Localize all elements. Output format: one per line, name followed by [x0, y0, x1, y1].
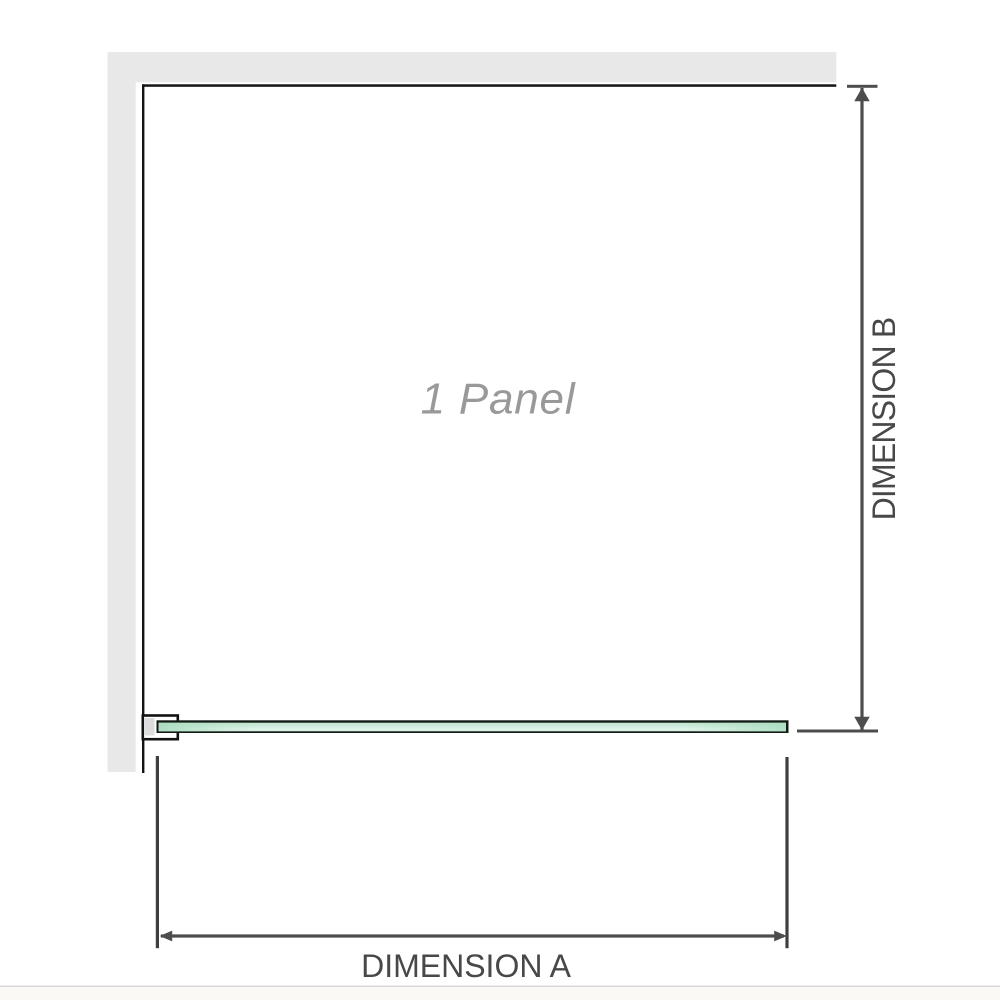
svg-text:DIMENSION A: DIMENSION A [361, 948, 571, 984]
svg-text:DIMENSION B: DIMENSION B [866, 318, 902, 521]
svg-text:1 Panel: 1 Panel [421, 375, 576, 424]
